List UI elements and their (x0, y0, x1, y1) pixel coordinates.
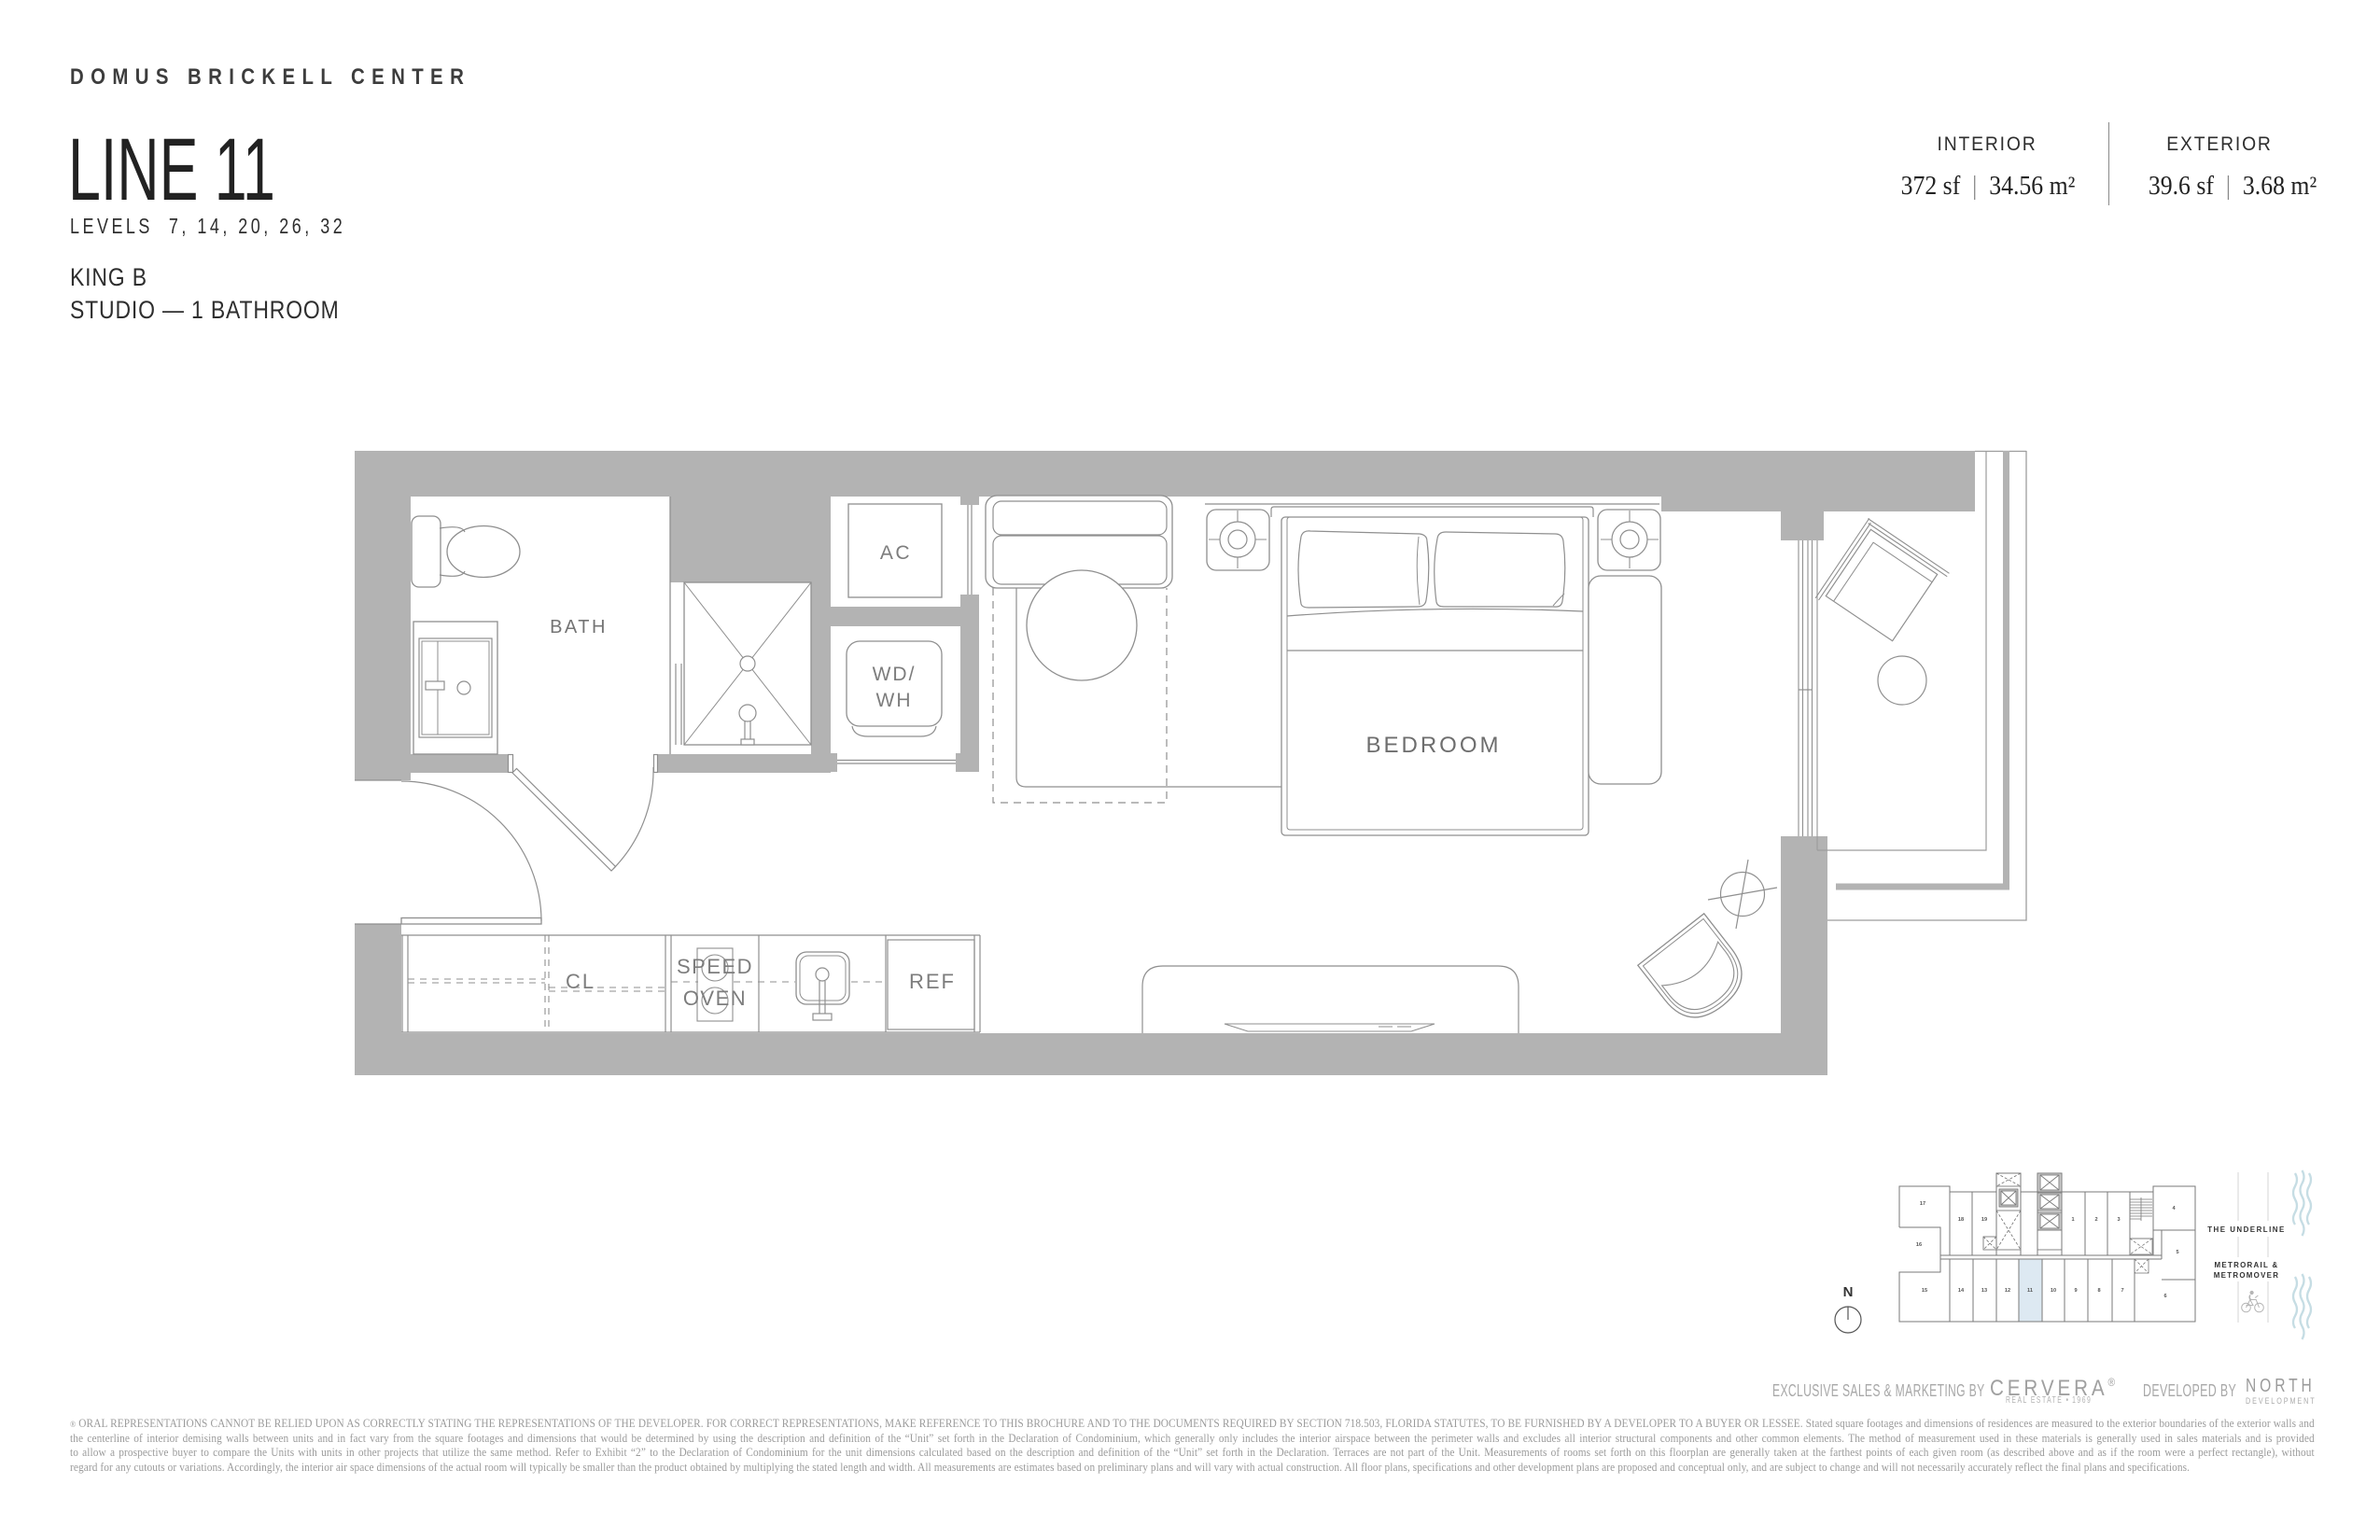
svg-text:14: 14 (1958, 1288, 1965, 1294)
svg-text:5: 5 (2176, 1250, 2178, 1255)
svg-text:15: 15 (1922, 1288, 1927, 1294)
svg-text:OVEN: OVEN (683, 987, 747, 1010)
svg-text:7: 7 (2121, 1288, 2123, 1294)
svg-text:2: 2 (2094, 1217, 2097, 1223)
svg-text:THE UNDERLINE: THE UNDERLINE (2207, 1225, 2286, 1234)
svg-text:10: 10 (2051, 1288, 2056, 1294)
svg-text:METRORAIL &: METRORAIL & (2215, 1261, 2279, 1269)
svg-text:3: 3 (2117, 1217, 2120, 1223)
svg-text:REF: REF (909, 970, 956, 993)
svg-text:SPEED: SPEED (677, 955, 753, 978)
svg-text:CL: CL (566, 970, 595, 993)
svg-text:WD/: WD/ (873, 664, 917, 685)
svg-text:13: 13 (1981, 1288, 1987, 1294)
svg-text:19: 19 (1981, 1217, 1987, 1223)
svg-text:4: 4 (2172, 1206, 2176, 1211)
svg-text:9: 9 (2074, 1288, 2077, 1294)
svg-text:16: 16 (1916, 1242, 1922, 1248)
svg-text:8: 8 (2097, 1288, 2100, 1294)
svg-text:1: 1 (2071, 1217, 2074, 1223)
svg-text:BATH: BATH (550, 617, 608, 637)
svg-text:12: 12 (2005, 1288, 2010, 1294)
svg-text:17: 17 (1920, 1201, 1925, 1207)
svg-text:N: N (1843, 1284, 1854, 1300)
svg-text:AC: AC (880, 542, 912, 564)
svg-text:18: 18 (1958, 1217, 1964, 1223)
svg-text:BEDROOM: BEDROOM (1365, 733, 1501, 758)
svg-text:11: 11 (2027, 1288, 2033, 1294)
svg-text:6: 6 (2163, 1294, 2166, 1299)
svg-text:WH: WH (876, 690, 913, 711)
svg-text:METROMOVER: METROMOVER (2214, 1271, 2279, 1280)
